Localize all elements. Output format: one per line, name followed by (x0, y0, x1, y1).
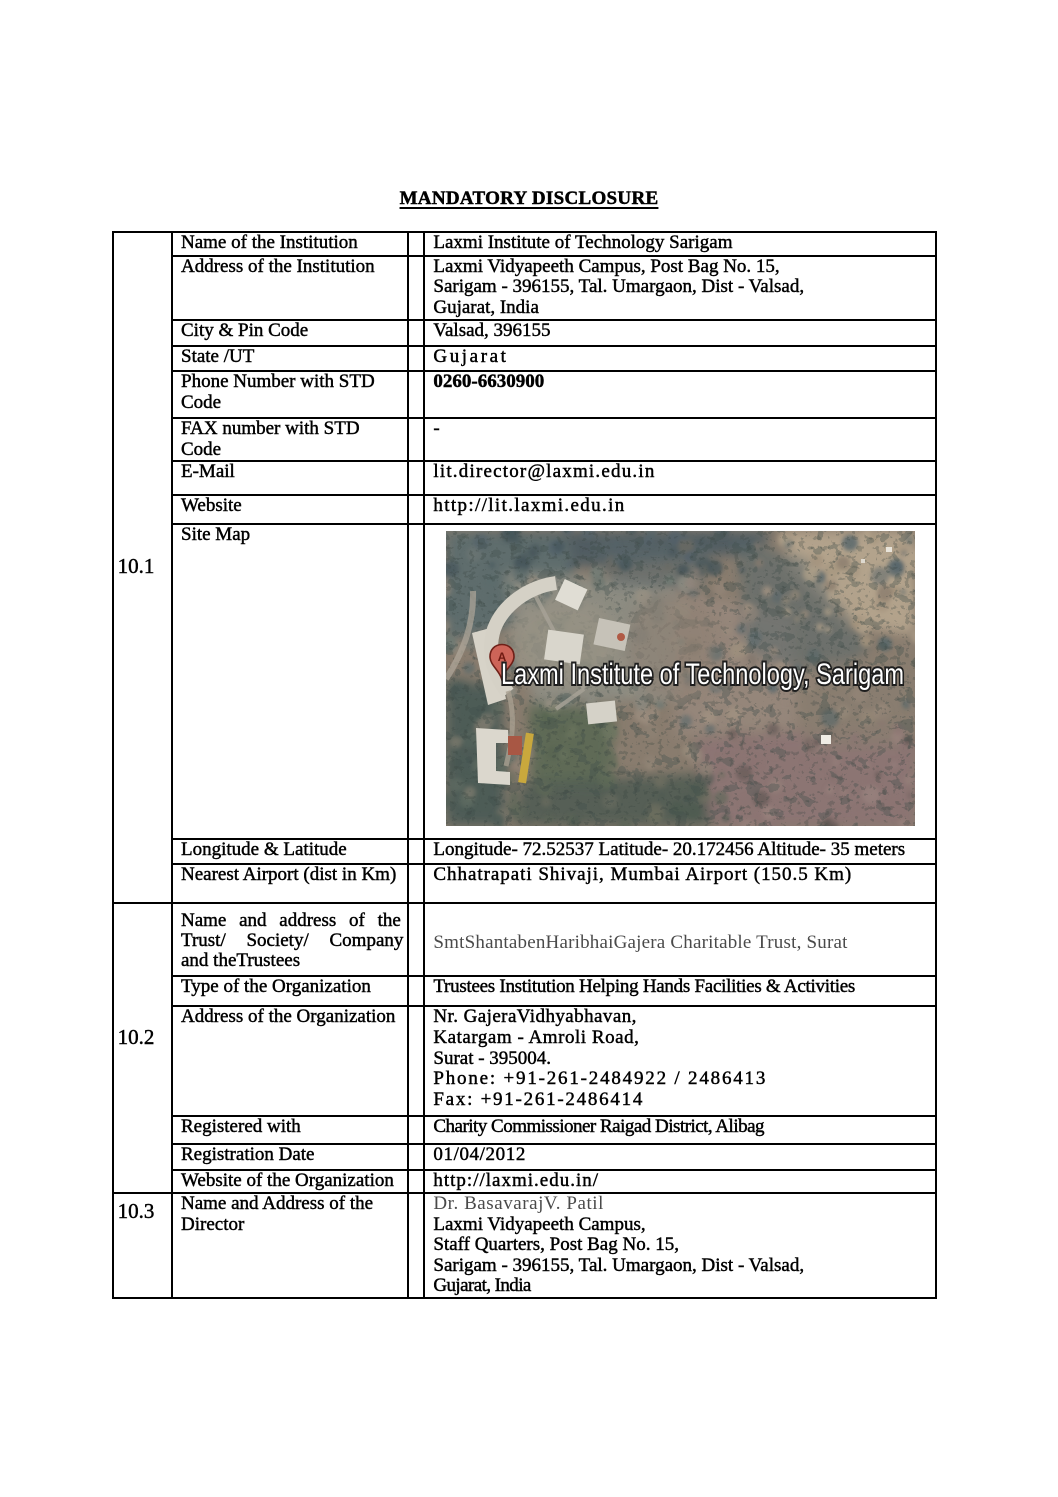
svg-text:Laxmi Institute of Technology,: Laxmi Institute of Technology, Sarigam (501, 658, 904, 691)
